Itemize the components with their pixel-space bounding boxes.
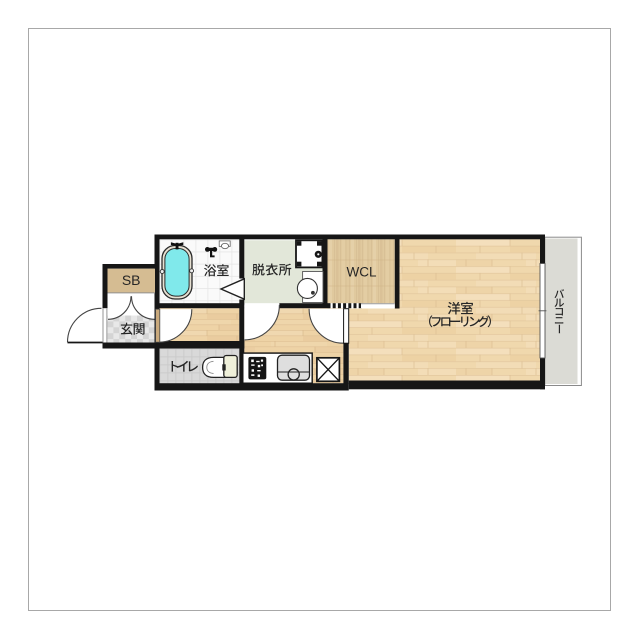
svg-text:WCL: WCL — [347, 265, 377, 280]
svg-text:SB: SB — [122, 272, 141, 288]
